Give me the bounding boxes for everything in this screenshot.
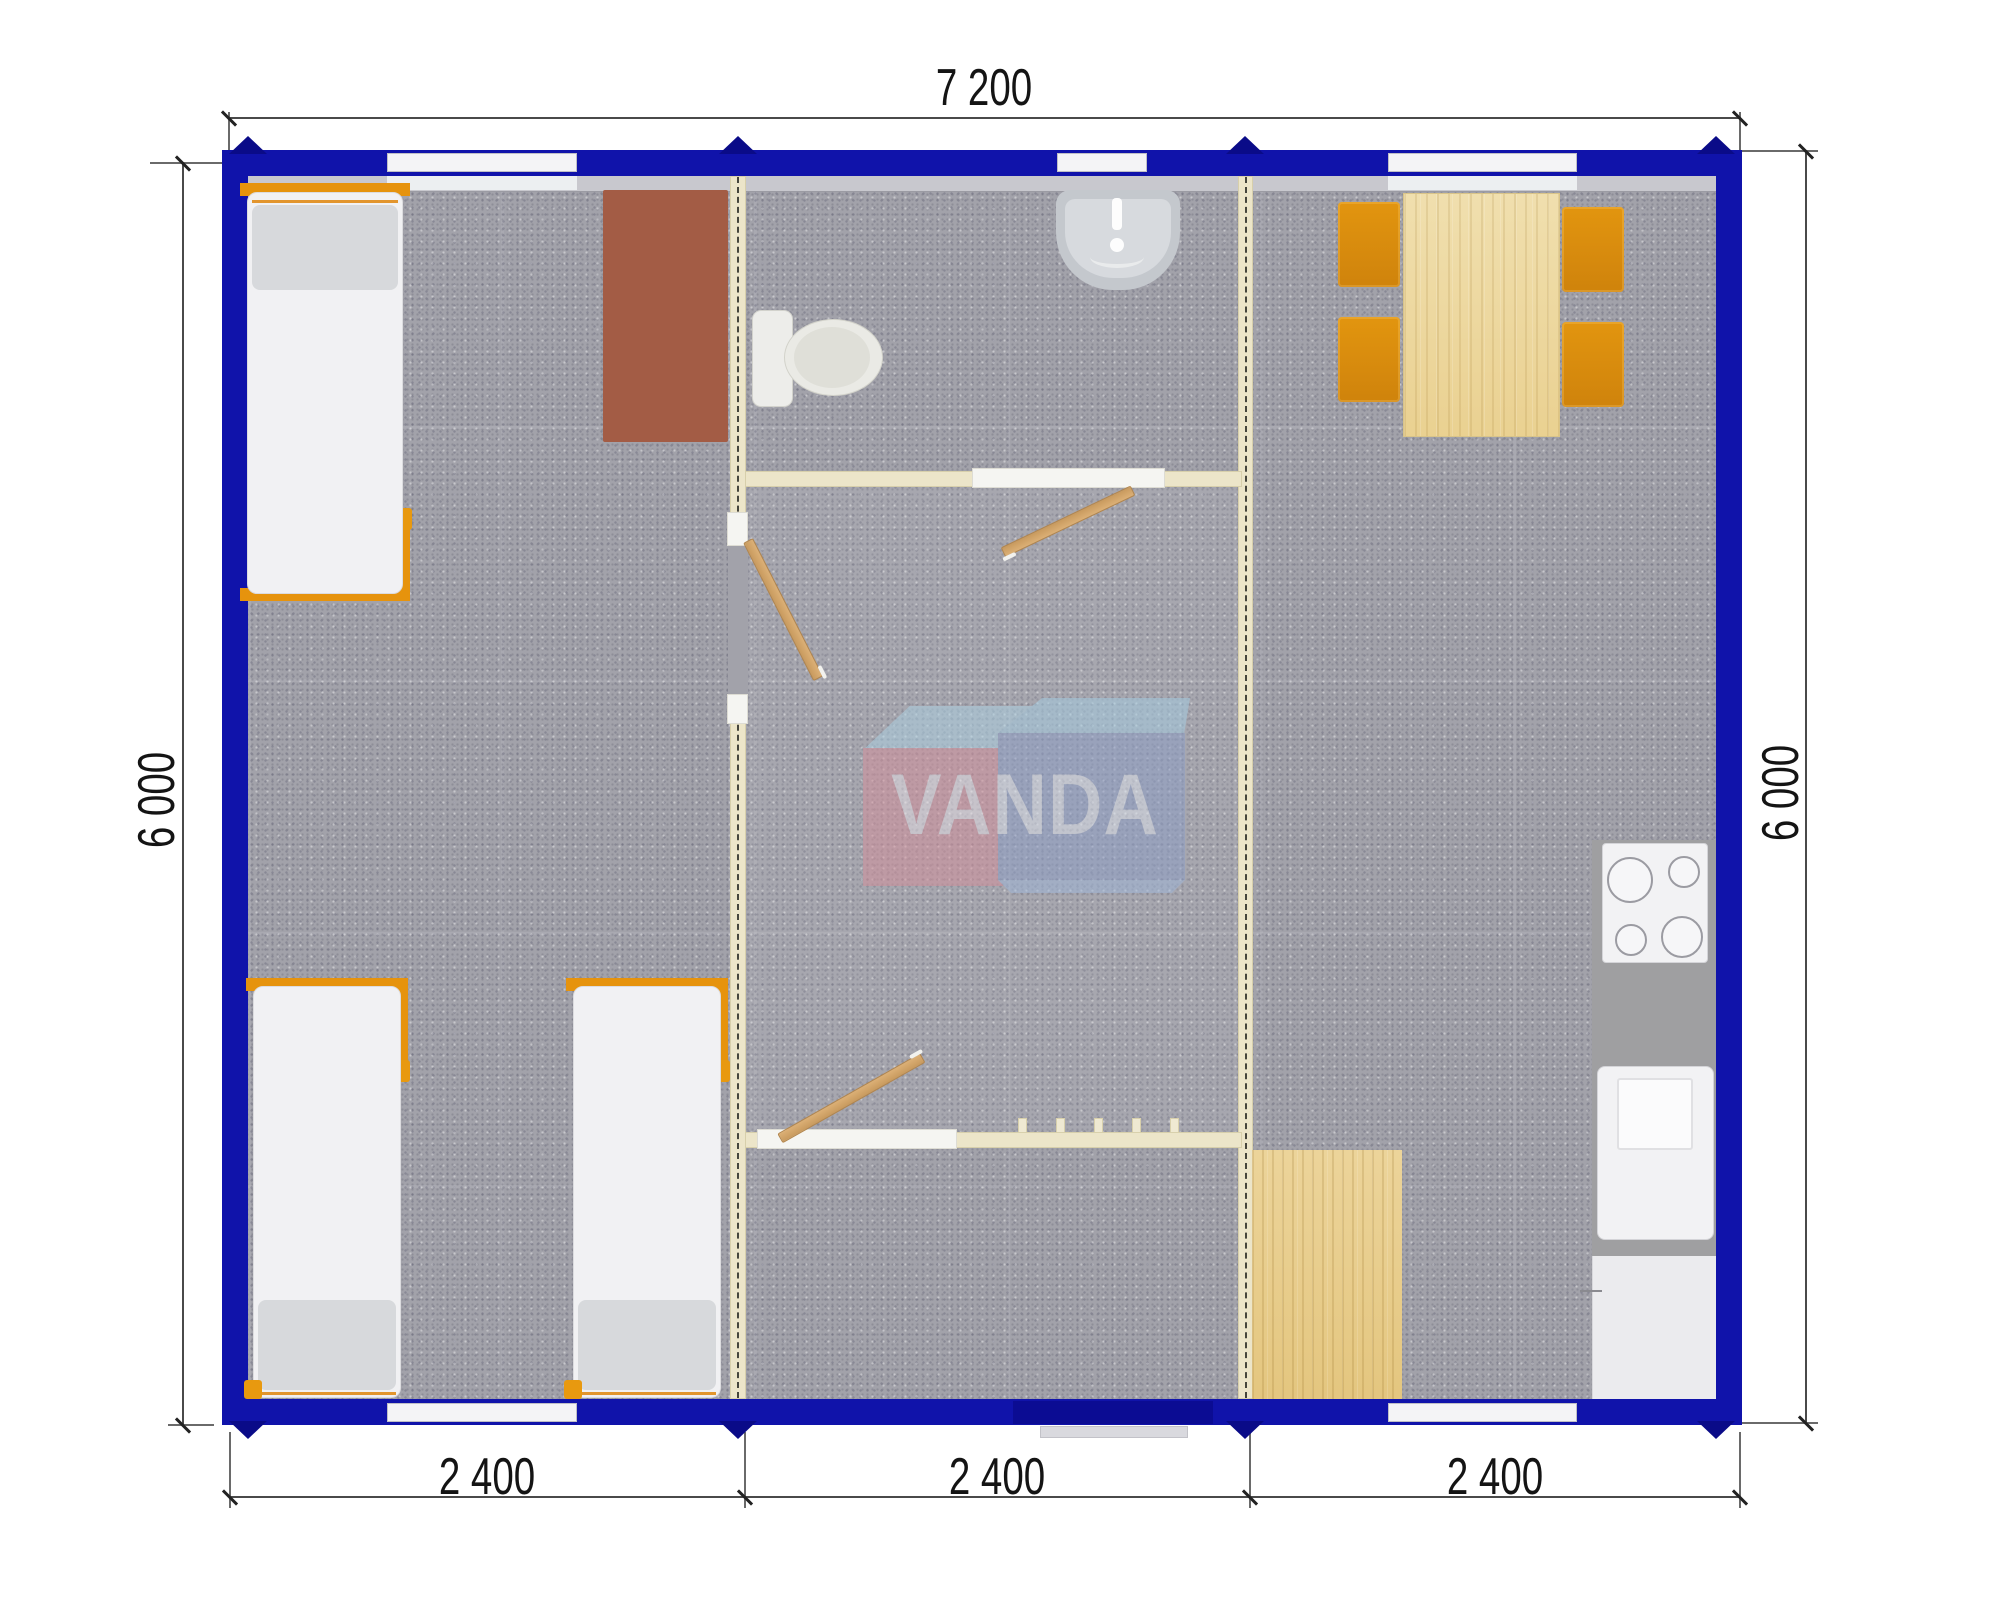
pillow [258,1300,396,1390]
burner-icon [1607,857,1653,903]
window [1388,153,1577,172]
floor-plan-page: 7 200 6 000 6 000 2 400 2 400 2 400 [0,0,2000,1597]
window-sill [387,176,577,190]
pillow [252,205,398,290]
window-sill [1388,176,1577,190]
chair [1338,202,1400,287]
coat-hook-icon [1056,1118,1065,1133]
coat-hook-icon [1018,1118,1027,1133]
dimension-top-line [229,117,1740,119]
chair [1562,322,1624,407]
corner-post-icon [1226,1421,1264,1439]
bed-frame-knob [564,1380,582,1399]
dimension-bottom-line [230,1496,1740,1498]
coat-hook-icon [1132,1118,1141,1133]
partition-wall-2 [1238,176,1253,1399]
corner-post-icon [229,136,267,154]
dimension-left-height: 6 000 [127,726,187,874]
wood-floor-mat [1252,1150,1402,1399]
bathroom-door-panel [972,468,1165,488]
entrance-door [1013,1401,1213,1424]
burner-icon [1661,916,1703,958]
desk [603,190,728,442]
burner-icon [1668,856,1700,888]
coat-hook-icon [1170,1118,1179,1133]
window [387,1403,577,1422]
extension-line [150,162,233,164]
building-outline: VANDA [222,150,1742,1425]
watermark-box-top-icon [998,698,1190,733]
watermark-box-side-icon [998,880,1185,893]
corner-post-icon [719,1421,757,1439]
dimension-right-height: 6 000 [1751,719,1811,867]
chair [1338,317,1400,402]
partition-wall-1 [730,176,746,1399]
bed-frame-edge [258,1392,396,1395]
corner-post-icon [1226,136,1264,154]
faucet-icon [1112,198,1122,230]
watermark-brand-text: VANDA [875,756,1174,855]
dimension-right-line [1805,151,1807,1423]
corner-post-icon [1697,1421,1735,1439]
washbasin-curve [1090,246,1144,268]
kitchen-sink-basin [1617,1078,1693,1150]
corner-post-icon [719,136,757,154]
refrigerator [1592,1256,1716,1399]
dimension-module-1: 2 400 [413,1447,561,1507]
pillow [578,1300,716,1390]
watermark: VANDA [855,698,1195,893]
door-opening [728,545,748,695]
refrigerator-handle [1580,1290,1602,1292]
bed-frame-edge [578,1392,716,1395]
extension-line [168,1424,214,1426]
chair [1562,207,1624,292]
corner-post-icon [1697,136,1735,154]
window [1057,153,1147,172]
window [1388,1403,1577,1422]
dimension-left-line [182,163,184,1425]
dimension-module-3: 2 400 [1421,1447,1569,1507]
dining-table [1403,193,1560,437]
toilet-seat [794,327,870,388]
corner-post-icon [229,1421,267,1439]
bed-frame-edge [252,200,398,203]
burner-icon [1615,924,1647,956]
window [387,153,577,172]
dimension-top-width: 7 200 [910,58,1058,118]
bed-frame-knob [244,1380,262,1399]
coat-hook-icon [1094,1118,1103,1133]
door-jamb [727,694,748,724]
entrance-threshold [1040,1426,1188,1438]
dimension-module-2: 2 400 [923,1447,1071,1507]
